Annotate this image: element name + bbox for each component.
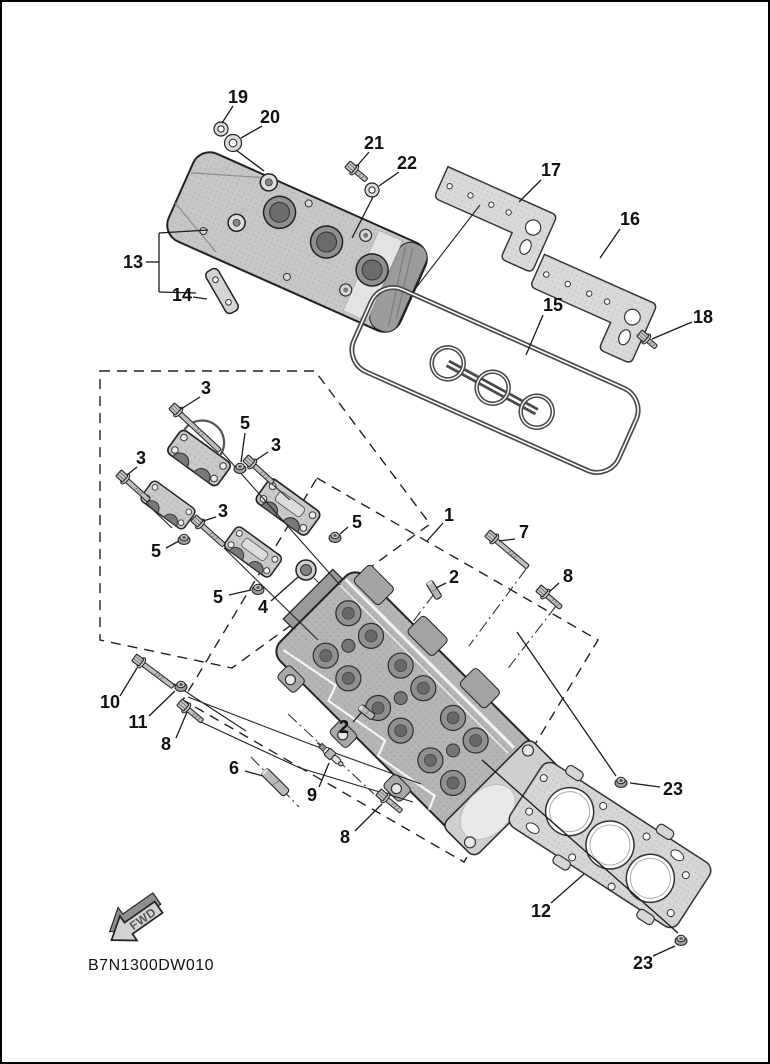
leader-line-3 [181, 397, 200, 409]
grommet-20 [225, 135, 242, 152]
leader-line-16 [600, 229, 620, 258]
nut-5c [329, 532, 341, 542]
bolt-3b [115, 469, 153, 505]
callout-5: 5 [213, 587, 223, 607]
callout-13: 13 [123, 252, 143, 272]
callout-22: 22 [397, 153, 417, 173]
exploded-parts-diagram: 1920212217161815131435333555417281011869… [0, 0, 770, 1064]
center-line [469, 569, 526, 646]
leader-line-22 [379, 172, 399, 186]
leader-line-2 [436, 583, 446, 588]
callout-15: 15 [543, 295, 563, 315]
bolt-21 [344, 160, 371, 185]
bolt-8-right [535, 584, 565, 613]
callout-10: 10 [100, 692, 120, 712]
callout-9: 9 [307, 785, 317, 805]
nut-11 [175, 681, 187, 691]
callout-3: 3 [136, 448, 146, 468]
cam-cap-4 [223, 525, 284, 579]
bracket-14 [204, 267, 240, 316]
callout-5: 5 [352, 512, 362, 532]
leader-line-11 [149, 691, 175, 716]
leader-line-14 [193, 297, 207, 299]
callout-4: 4 [258, 597, 268, 617]
callout-17: 17 [541, 160, 561, 180]
leader-line-19 [222, 106, 233, 123]
leader-line-21 [357, 152, 369, 166]
callout-6: 6 [229, 758, 239, 778]
diagram-code: B7N1300DW010 [88, 957, 214, 974]
leader-line-5 [229, 590, 251, 595]
leader-line-3 [127, 467, 137, 475]
center-line [506, 606, 556, 671]
leader-line-4 [271, 577, 298, 601]
leader-line-18 [652, 322, 692, 339]
callout-2: 2 [339, 717, 349, 737]
leader-line-20 [241, 126, 262, 138]
cam-cap-1 [166, 411, 246, 488]
leader-line-6 [245, 771, 263, 776]
callout-5: 5 [151, 541, 161, 561]
callout-20: 20 [260, 107, 280, 127]
callout-18: 18 [693, 307, 713, 327]
leader-line-17 [519, 180, 541, 202]
washer-22 [365, 183, 379, 197]
leader-line-3 [256, 452, 268, 460]
leader-line-7 [499, 539, 515, 541]
nut-5b [178, 534, 190, 544]
callout-19: 19 [228, 87, 248, 107]
callout-12: 12 [531, 901, 551, 921]
plate-gasket-16 [518, 254, 657, 363]
leader-line-8 [176, 712, 187, 738]
callout-3: 3 [201, 378, 211, 398]
cylinder-head-cover [161, 143, 434, 337]
callout-8: 8 [340, 827, 350, 847]
nut-5d [252, 584, 264, 594]
nut-23-lower [675, 935, 687, 945]
leader-line-10 [120, 668, 137, 696]
leader-line-12 [551, 874, 584, 903]
leader-line-5 [166, 541, 179, 548]
fwd-arrow: FWD [98, 886, 170, 952]
callout-8: 8 [563, 566, 573, 586]
nut-23-upper [615, 777, 627, 787]
callout-16: 16 [620, 209, 640, 229]
leader-line-1 [427, 523, 443, 541]
callout-8: 8 [161, 734, 171, 754]
callout-11: 11 [128, 712, 147, 732]
washer-19 [214, 122, 228, 136]
leader-line-3 [203, 517, 216, 521]
leader-line-8 [355, 804, 382, 831]
parts-diagram-page: 1920212217161815131435333555417281011869… [0, 0, 770, 1064]
callout-1: 1 [444, 505, 454, 525]
leader-line-5 [241, 433, 245, 462]
leader-line-23 [630, 783, 660, 787]
callout-3: 3 [271, 435, 281, 455]
plug-4 [296, 560, 316, 580]
plate-gasket-17 [422, 167, 557, 273]
callout-14: 14 [172, 285, 192, 305]
callout-2: 2 [449, 567, 459, 587]
callout-7: 7 [519, 522, 529, 542]
leader-line-9 [319, 763, 329, 787]
leader-line-23 [653, 946, 675, 956]
callout-5: 5 [240, 413, 250, 433]
bolt-10 [131, 653, 177, 692]
callout-3: 3 [218, 501, 228, 521]
leader-line-5 [340, 527, 348, 534]
callout-23: 23 [633, 953, 653, 973]
nut-5a [234, 463, 246, 473]
callout-21: 21 [364, 133, 384, 153]
leader-line-8 [549, 583, 559, 592]
stud-6 [261, 768, 290, 797]
callout-23: 23 [663, 779, 683, 799]
stud-2-upper [426, 580, 442, 600]
